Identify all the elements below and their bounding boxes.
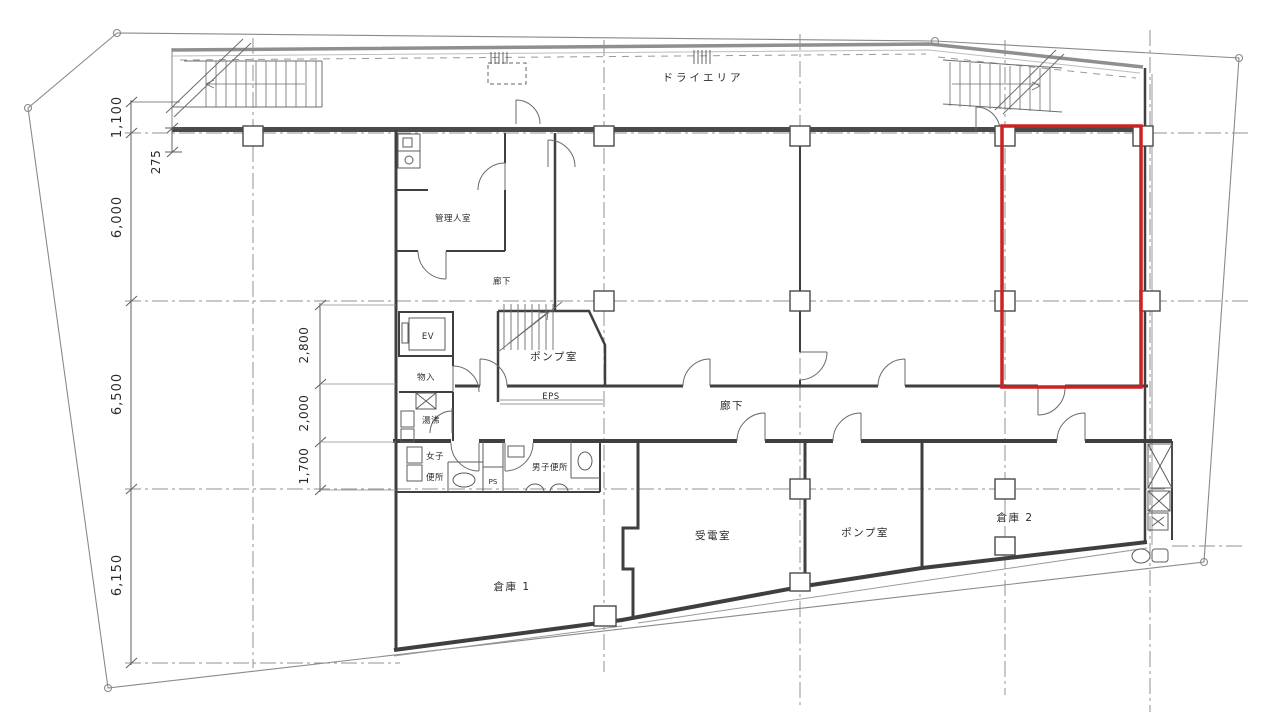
floor-plan-page: ドライエリア [0, 0, 1280, 724]
dim-label-2000: 2,000 [297, 395, 311, 432]
fixtures [398, 134, 1168, 563]
room-label-elevator: EV [422, 332, 434, 342]
room-label-corridor-lower: 廊下 [720, 399, 744, 412]
floor-plan-drawing: ドライエリア [0, 0, 1280, 724]
room-label-eps: EPS [542, 392, 559, 402]
room-label-ps: PS [489, 478, 498, 486]
columns [243, 126, 1160, 626]
room-label-manager: 管理人室 [435, 213, 471, 224]
doors [418, 100, 1085, 471]
room-label-women-2: 便所 [426, 472, 444, 483]
room-label-power: 受電室 [695, 529, 731, 542]
room-label-pump-mid: ポンプ室 [530, 350, 578, 363]
room-label-men: 男子便所 [532, 462, 568, 473]
dry-area: ドライエリア [172, 44, 1143, 130]
dim-label-6150: 6,150 [110, 554, 125, 596]
building-walls [172, 68, 1172, 656]
room-label-corridor-upper: 廊下 [493, 276, 511, 287]
stair-top-right [943, 50, 1064, 114]
dimension-labels: 1,100 275 6,000 6,500 6,150 2,800 2,000 … [110, 96, 311, 596]
stair-middle [498, 302, 562, 352]
dim-label-1700: 1,700 [297, 448, 311, 485]
dim-label-6500: 6,500 [110, 373, 125, 415]
room-label-women-1: 女子 [426, 451, 444, 462]
dimension-lines [126, 97, 396, 668]
dashed-pit-outline [488, 63, 526, 84]
room-label-hot-water: 湯沸 [422, 415, 440, 426]
dim-label-275: 275 [149, 150, 163, 174]
room-label-pump-lower: ポンプ室 [841, 526, 889, 539]
room-label-storage: 物入 [417, 372, 435, 383]
room-label-warehouse1: 倉庫 1 [493, 580, 530, 593]
dim-label-2800: 2,800 [297, 327, 311, 364]
room-labels: 管理人室 廊下 EV 物入 湯沸 ポンプ室 EPS PS 女子 便所 男子便所 … [417, 213, 1034, 593]
dim-label-1100: 1,100 [110, 96, 125, 138]
dim-label-6000: 6,000 [110, 196, 125, 238]
room-label-warehouse2: 倉庫 2 [996, 511, 1033, 524]
highlighted-unit-outline [1002, 126, 1141, 387]
room-label-dry-area: ドライエリア [663, 72, 744, 84]
